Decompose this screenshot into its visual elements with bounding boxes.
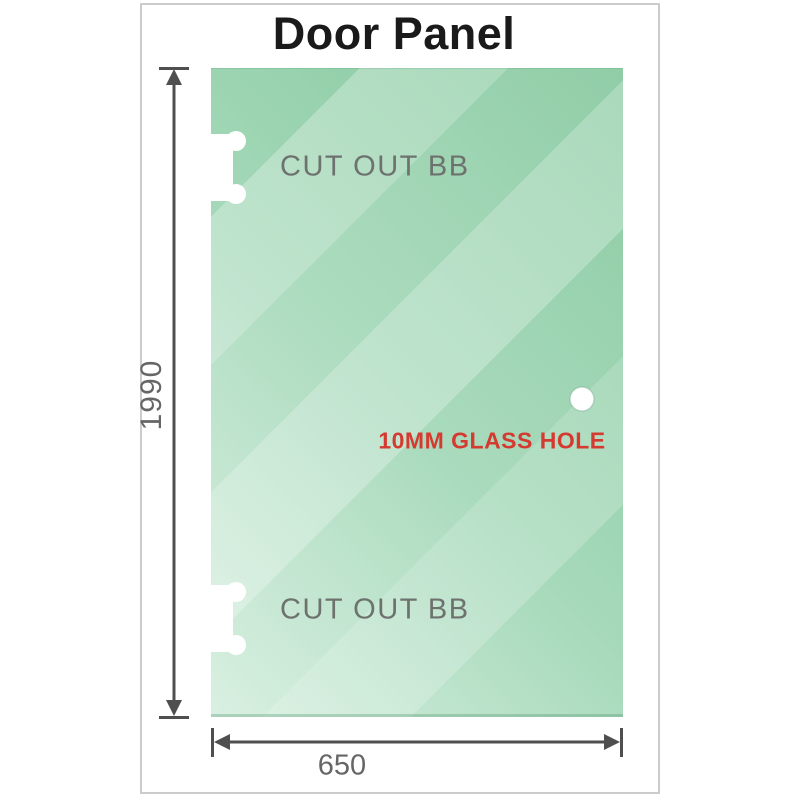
- cutout-label-top: CUT OUT BB: [280, 151, 470, 184]
- hinge-cutout-bottom: [211, 582, 246, 655]
- hinge-cutout-top-upper-lobe: [226, 131, 246, 151]
- hinge-cutout-bottom-lower-lobe: [226, 635, 246, 655]
- width-dimension: [213, 728, 622, 757]
- arrow-down-icon: [166, 700, 182, 716]
- hinge-cutout-top: [211, 131, 246, 204]
- height-dimension-label: 1990: [135, 360, 169, 431]
- arrow-left-icon: [214, 734, 230, 750]
- arrow-up-icon: [166, 69, 182, 85]
- width-dimension-label: 650: [318, 750, 366, 783]
- hinge-cutout-top-lower-lobe: [226, 184, 246, 204]
- door-panel-spec-diagram: Door Panel 1990 650 C: [0, 0, 800, 800]
- glass-hole-label: 10MM GLASS HOLE: [378, 428, 605, 455]
- arrow-right-icon: [604, 734, 620, 750]
- dimension-and-cutout-overlay: [0, 0, 800, 800]
- glass-hole: [570, 387, 594, 411]
- cutout-label-bottom: CUT OUT BB: [280, 594, 470, 627]
- hinge-cutout-bottom-upper-lobe: [226, 582, 246, 602]
